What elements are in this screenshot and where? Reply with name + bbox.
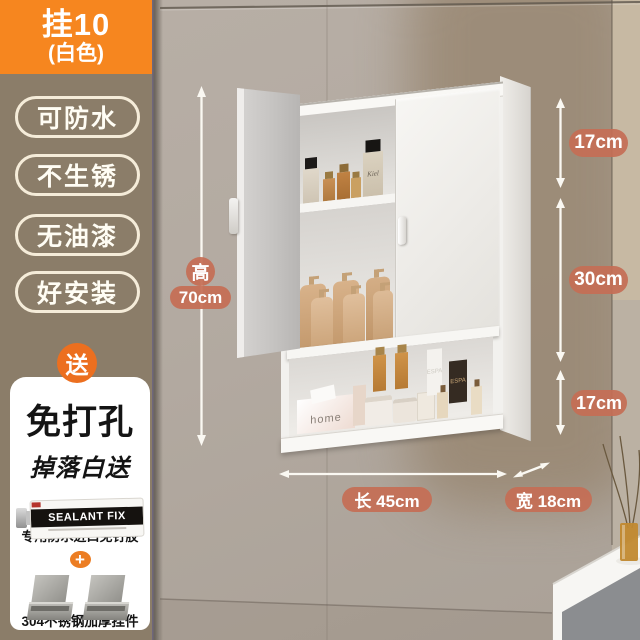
feature-tag-waterproof: 可防水: [15, 96, 140, 138]
wall-corner-shadow: [151, 0, 163, 640]
model-name: 挂10: [42, 8, 110, 42]
feature-tag-easyinstall: 好安装: [15, 271, 140, 313]
feature-tag-paintfree: 无油漆: [15, 214, 140, 256]
height-dim-value: 70cm: [170, 286, 231, 309]
bracket-left: [28, 575, 72, 623]
segment-top-dim: 17cm: [569, 129, 628, 157]
product-model-badge: 挂10 (白色): [0, 0, 152, 74]
plus-icon: +: [70, 551, 91, 568]
model-color: (白色): [48, 42, 104, 66]
bracket-right: [84, 575, 128, 623]
sealant-tube-image: SEALANT FIX: [16, 497, 144, 522]
glue-brand: SEALANT FIX: [48, 510, 126, 524]
feature-tag-rustproof: 不生锈: [15, 154, 140, 196]
gift-card: 免打孔 掉落白送 SEALANT FIX 专用防水进口免钉胶 + 304不锈钢加…: [10, 377, 150, 630]
gift-subtitle: 掉落白送: [30, 448, 130, 483]
gift-title: 免打孔: [26, 394, 134, 445]
height-dim-char: 高: [186, 257, 215, 286]
segment-bottom-dim: 17cm: [571, 390, 627, 416]
length-dim: 长 45cm: [342, 487, 432, 512]
segment-middle-dim: 30cm: [569, 266, 628, 294]
brackets-image: [28, 575, 132, 603]
depth-dim: 宽 18cm: [505, 487, 592, 512]
gift-ribbon-badge: 送: [57, 343, 97, 383]
